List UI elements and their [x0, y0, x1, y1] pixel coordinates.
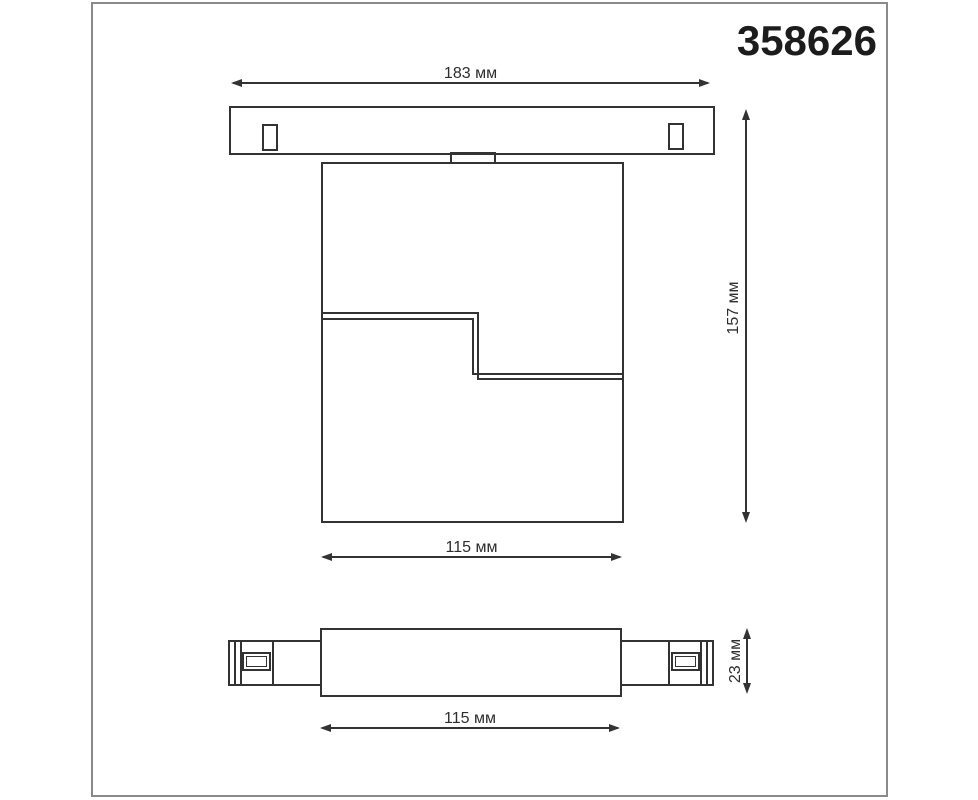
track-slot-left — [262, 124, 278, 151]
dim-side-height-line — [746, 631, 748, 691]
fold-seam-vertical-outer — [477, 312, 479, 380]
side-connector-left-divider-3 — [272, 642, 274, 684]
dim-overall-height-line — [745, 112, 747, 514]
dim-side-length-arrow-left-icon — [320, 724, 331, 732]
track-outline — [229, 106, 715, 155]
fold-seam-top-outer — [323, 312, 479, 314]
fold-seam-top-inner — [323, 318, 474, 320]
dim-body-width-line — [323, 556, 620, 558]
track-slot-right — [668, 123, 684, 150]
dim-body-width-label: 115 мм — [321, 538, 622, 558]
side-connector-right-divider-2 — [700, 642, 702, 684]
fold-seam-vertical-inner — [472, 318, 474, 375]
dim-track-width-line — [233, 82, 708, 84]
side-connector-left-slot — [242, 652, 271, 671]
fold-seam-bottom-inner — [472, 373, 622, 375]
side-body-outline — [320, 628, 622, 697]
side-connector-right-divider-3 — [668, 642, 670, 684]
product-code: 358626 — [737, 20, 877, 62]
dim-track-width-label: 183 мм — [231, 64, 710, 84]
fold-seam-bottom-outer — [477, 378, 622, 380]
side-connector-right-divider-1 — [706, 642, 708, 684]
product-dimension-drawing: 358626 183 мм 157 мм 115 мм — [0, 0, 978, 800]
side-connector-right-slot — [671, 652, 700, 671]
dim-overall-height-label: 157 мм — [724, 268, 744, 348]
side-connector-left-slot-inner — [246, 656, 267, 667]
side-connector-left-divider-1 — [234, 642, 236, 684]
dim-track-width-arrow-right-icon — [699, 79, 710, 87]
dim-body-width-arrow-left-icon — [321, 553, 332, 561]
dim-side-length-label: 115 мм — [320, 709, 620, 729]
dim-side-height-label: 23 мм — [726, 621, 746, 701]
dim-body-width-arrow-right-icon — [611, 553, 622, 561]
dim-side-length-line — [322, 727, 618, 729]
dim-track-width-arrow-left-icon — [231, 79, 242, 87]
side-connector-right-slot-inner — [675, 656, 696, 667]
dim-overall-height-arrow-up-icon — [742, 109, 750, 120]
dim-side-length-arrow-right-icon — [609, 724, 620, 732]
dim-overall-height-arrow-down-icon — [742, 512, 750, 523]
